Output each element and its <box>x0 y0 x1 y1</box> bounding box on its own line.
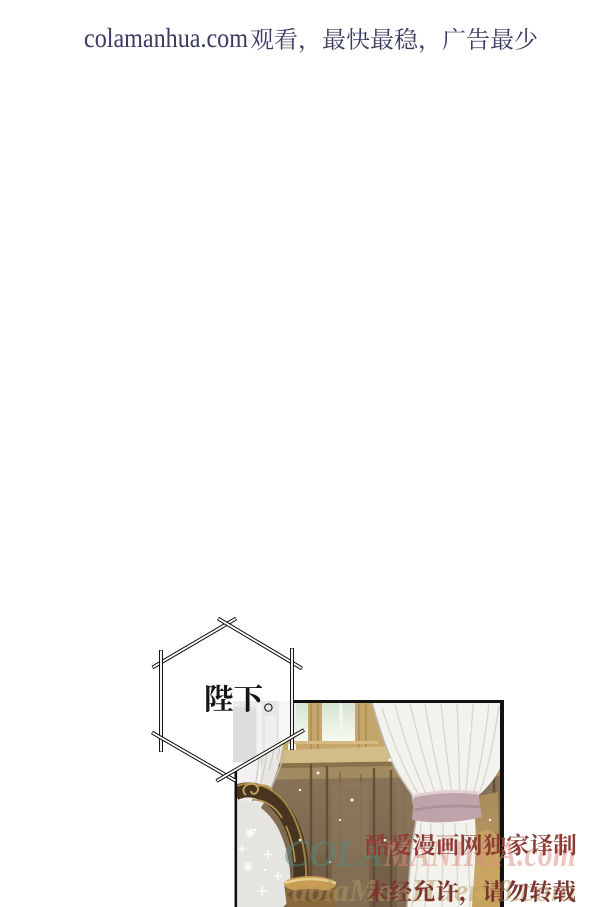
svg-text:colamanhua.com: colamanhua.com <box>84 23 248 53</box>
